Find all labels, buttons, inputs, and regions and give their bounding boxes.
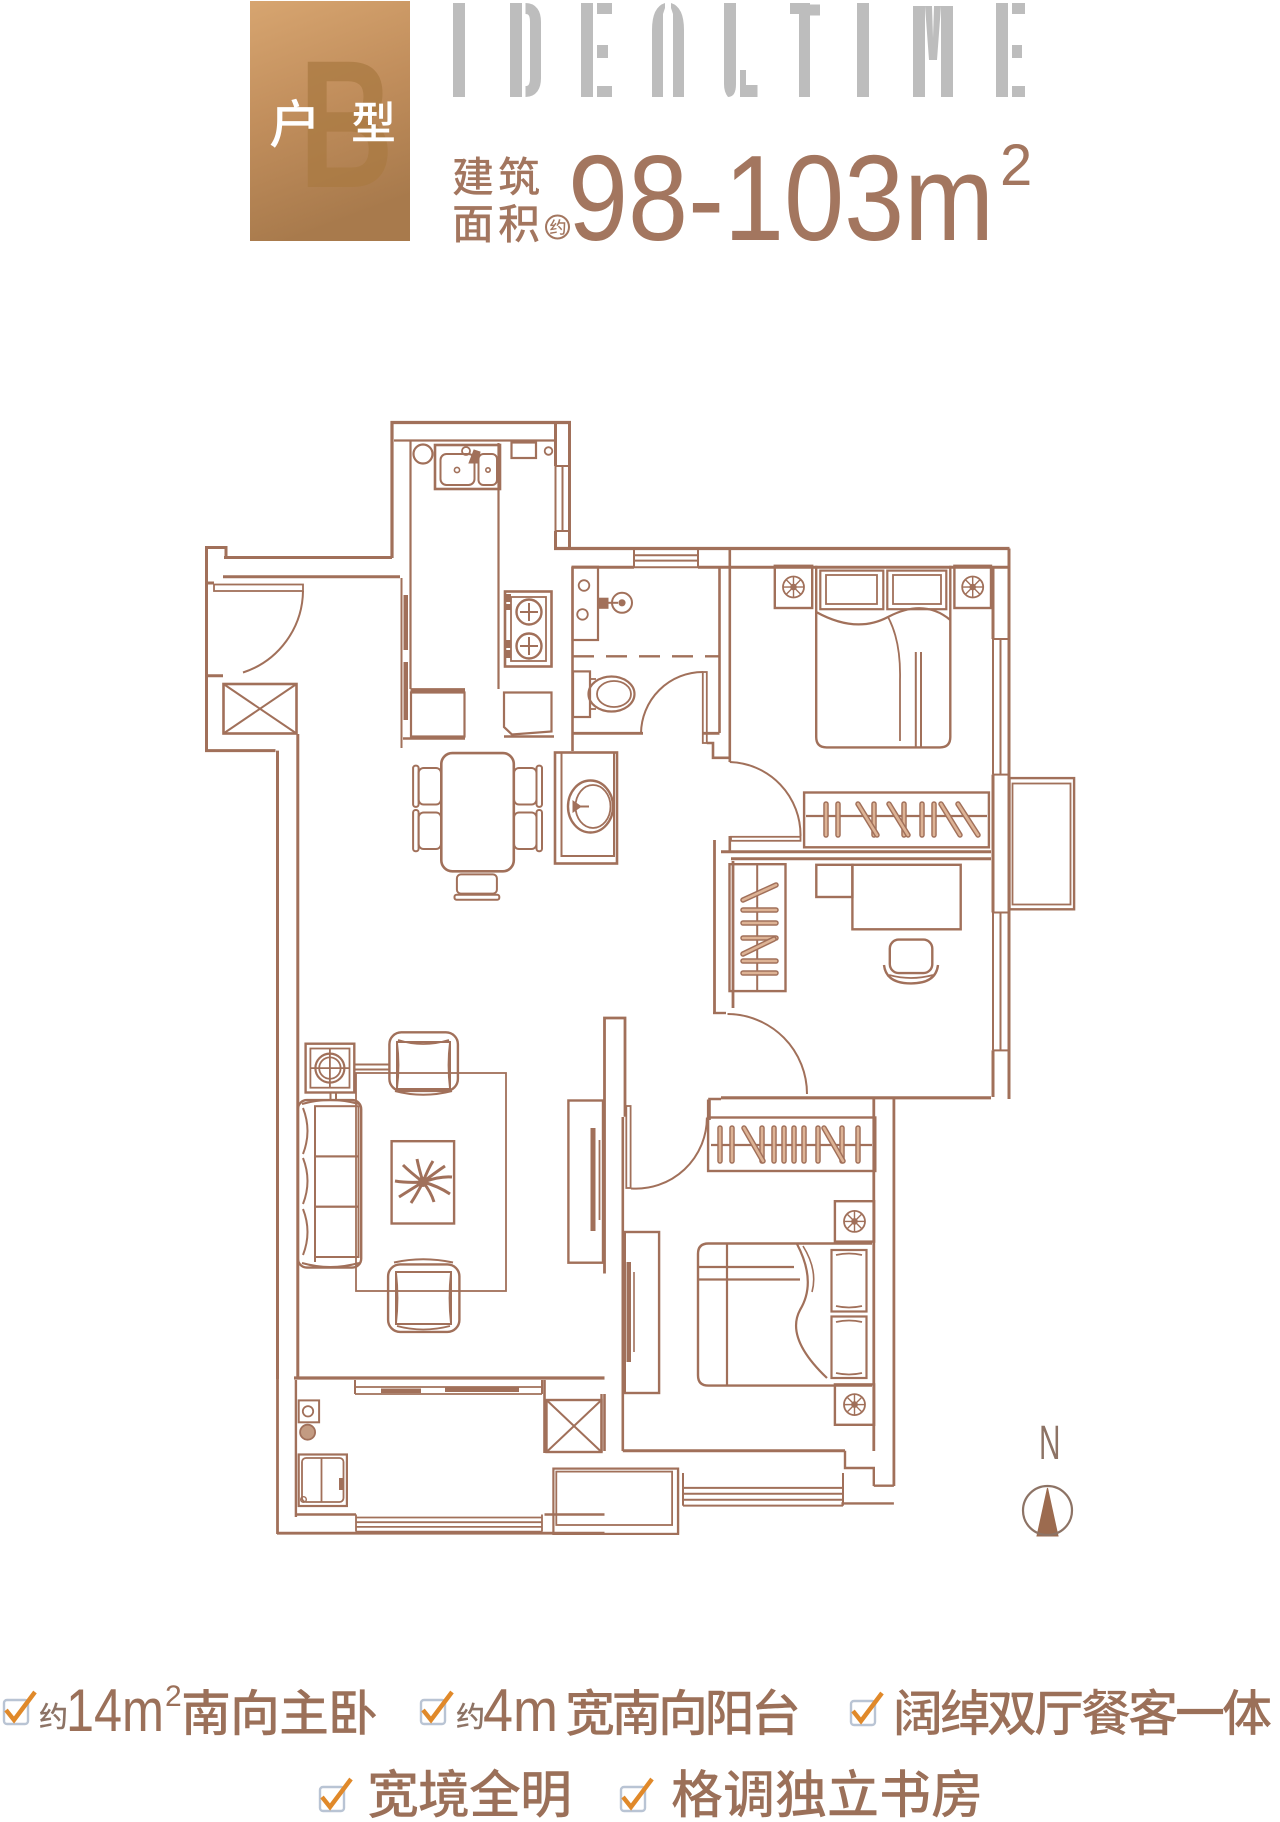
svg-text:14m: 14m xyxy=(66,1677,164,1744)
svg-text:2: 2 xyxy=(1000,133,1032,198)
svg-text:N: N xyxy=(1039,1417,1060,1470)
svg-text:98-103m: 98-103m xyxy=(568,131,994,267)
svg-text:2: 2 xyxy=(165,1680,182,1713)
svg-text:4m: 4m xyxy=(483,1677,558,1744)
